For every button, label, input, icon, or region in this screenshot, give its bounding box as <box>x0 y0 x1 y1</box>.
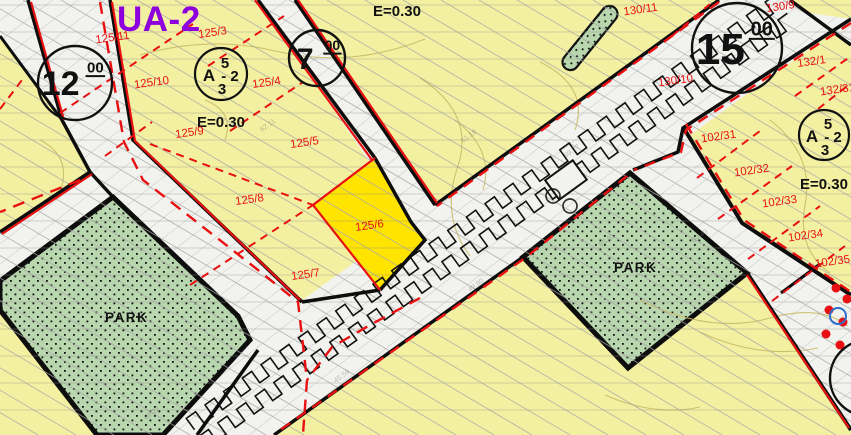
park-label: PARK <box>614 260 657 275</box>
park-label: PARK <box>105 310 148 325</box>
svg-text:15: 15 <box>696 25 745 74</box>
coefficient-label: E=0.30 <box>197 114 245 131</box>
svg-text:12: 12 <box>42 65 80 103</box>
svg-text:3: 3 <box>821 142 829 159</box>
coefficient-label: E=0.30 <box>373 3 421 20</box>
svg-text:00: 00 <box>325 37 341 53</box>
map-canvas: 69.2765.3145.5949.8069.2269.4062.1161.18… <box>0 0 851 435</box>
zone-code-label: UA-2 <box>117 0 201 39</box>
red-point-marker <box>822 330 831 339</box>
svg-text:00: 00 <box>751 18 773 40</box>
red-point-marker <box>832 284 841 293</box>
svg-text:7: 7 <box>297 43 314 76</box>
svg-text:3: 3 <box>218 81 226 98</box>
svg-text:A: A <box>806 127 818 146</box>
coefficient-label: E=0.30 <box>800 176 848 193</box>
zoning-map[interactable]: 69.2765.3145.5949.8069.2269.4062.1161.18… <box>0 0 851 435</box>
svg-text:A: A <box>203 66 215 85</box>
zoning-symbol-a523: 5A- 23 <box>799 110 849 160</box>
svg-text:00: 00 <box>87 60 104 77</box>
